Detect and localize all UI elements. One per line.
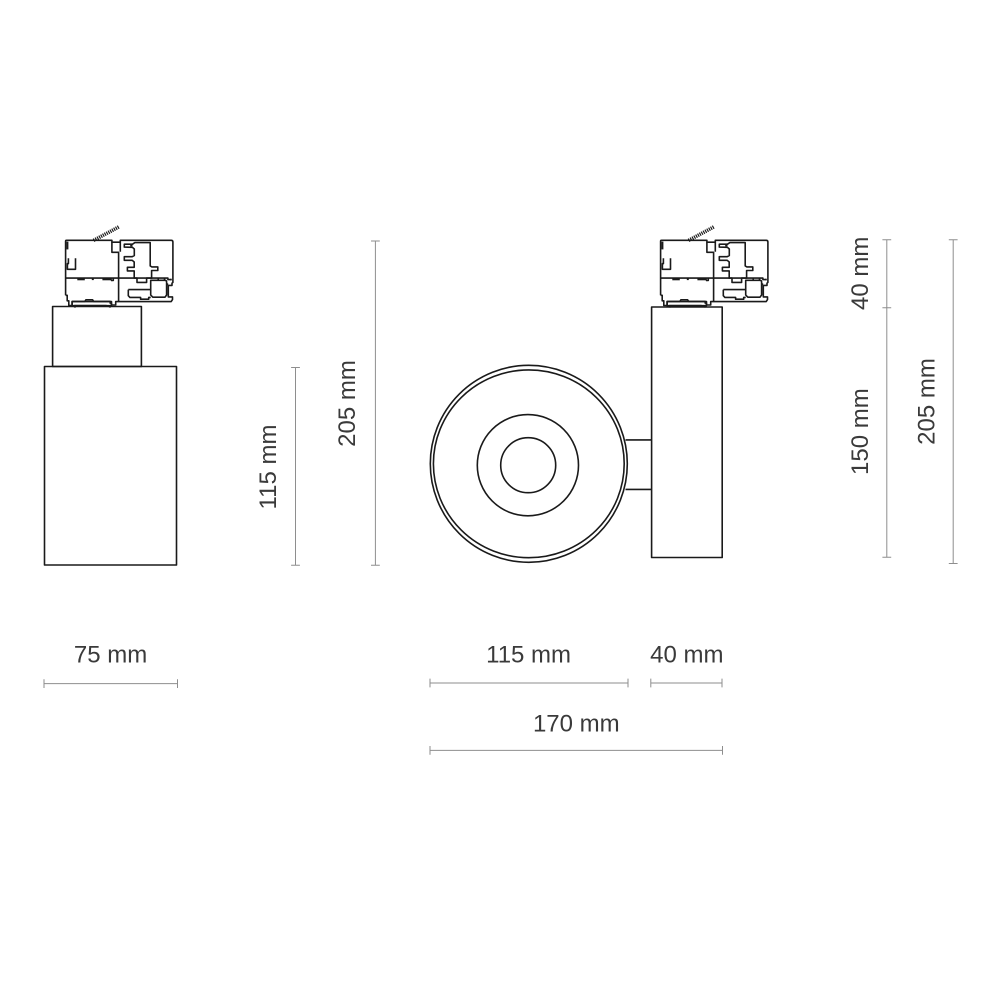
svg-text:115 mm: 115 mm [486, 641, 571, 668]
svg-text:150 mm: 150 mm [847, 388, 874, 475]
svg-text:75 mm: 75 mm [74, 641, 147, 668]
svg-text:205 mm: 205 mm [334, 360, 361, 447]
svg-text:40 mm: 40 mm [650, 641, 723, 668]
svg-text:115 mm: 115 mm [255, 425, 282, 510]
svg-text:170 mm: 170 mm [533, 710, 620, 737]
svg-text:40 mm: 40 mm [847, 237, 874, 310]
svg-text:205 mm: 205 mm [914, 358, 941, 445]
